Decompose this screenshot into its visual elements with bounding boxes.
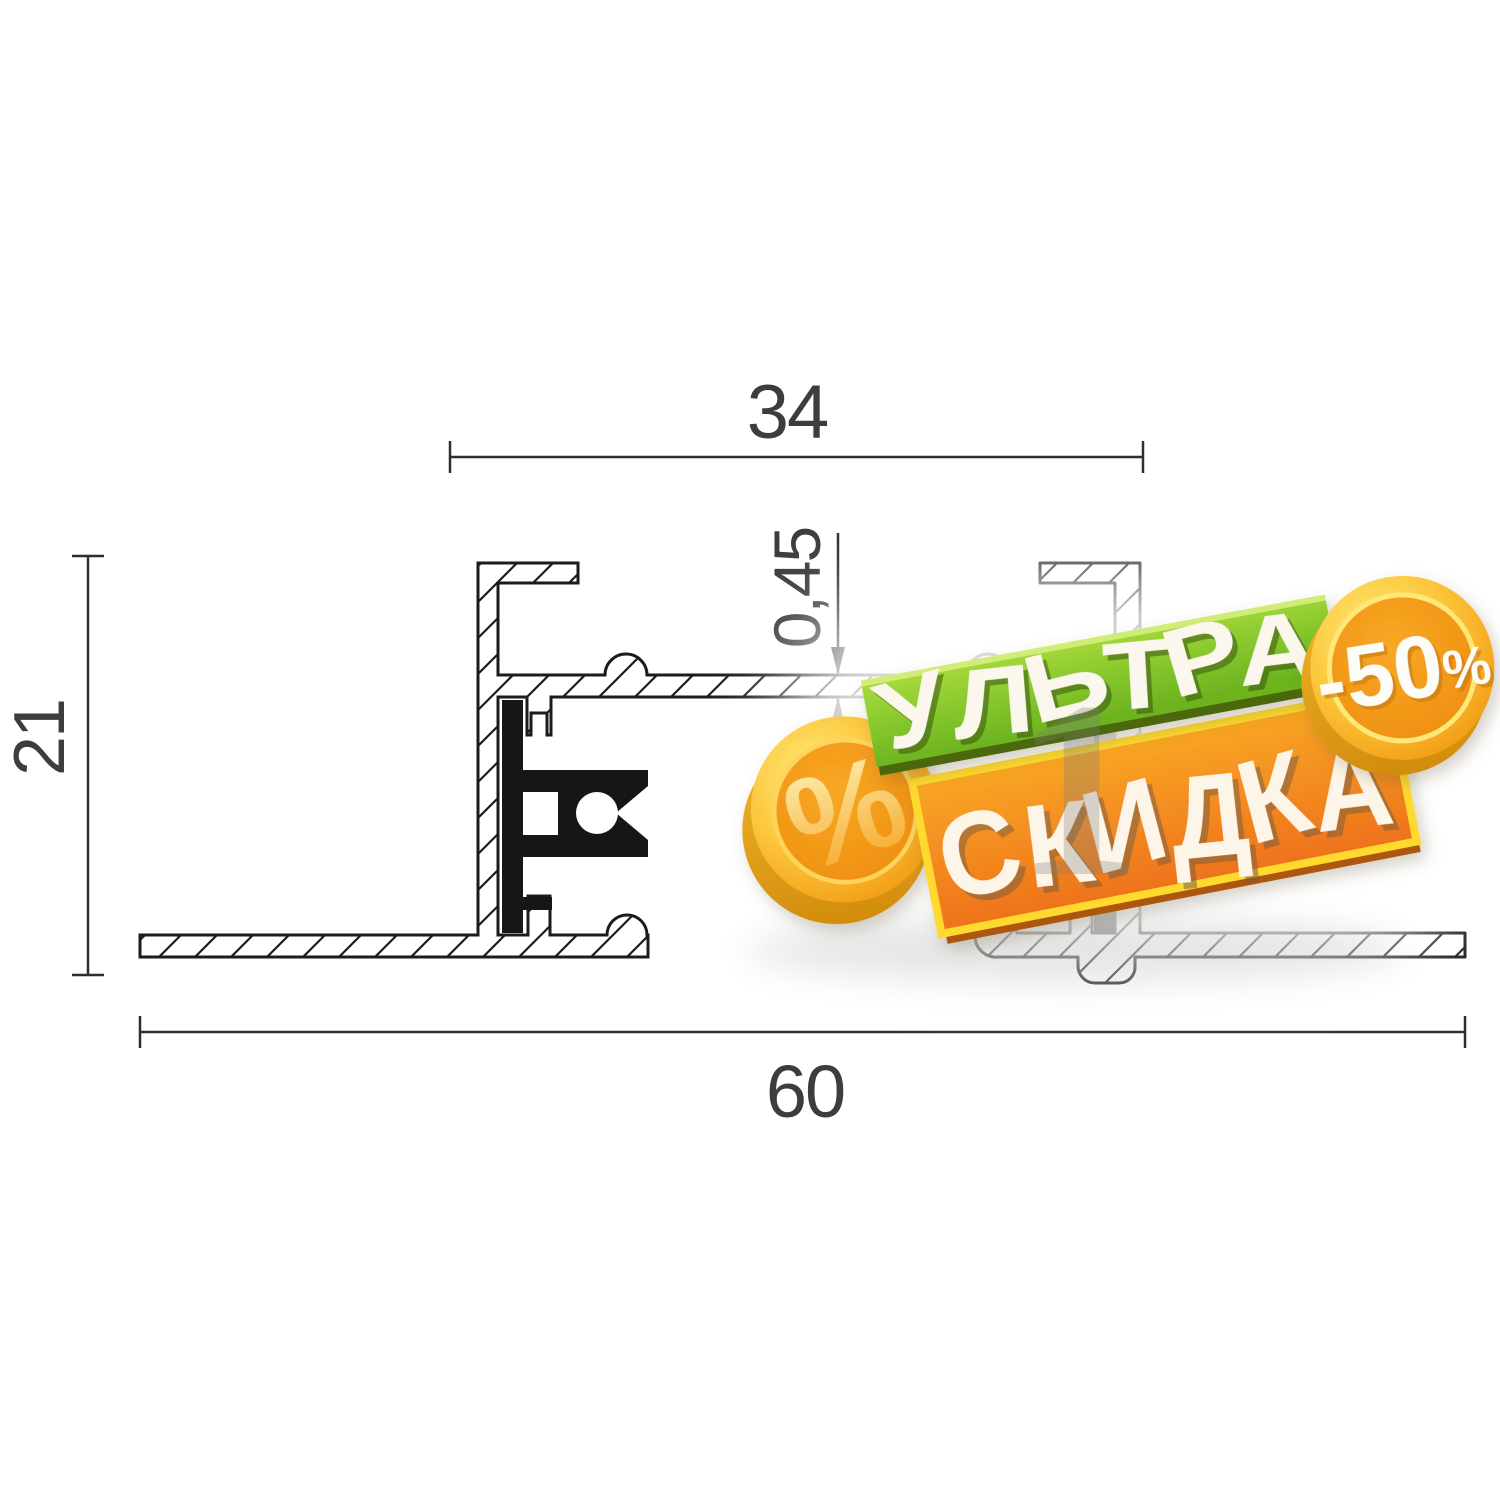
promo-technical-image: 34 0,45 21 60 bbox=[0, 0, 1500, 1500]
promo-sticker-svg: % СКИДКА СКИДКА УЛЬТРА УЛЬТРА -50% bbox=[0, 0, 1500, 1500]
watermark-digit: 1 bbox=[1015, 649, 1141, 929]
